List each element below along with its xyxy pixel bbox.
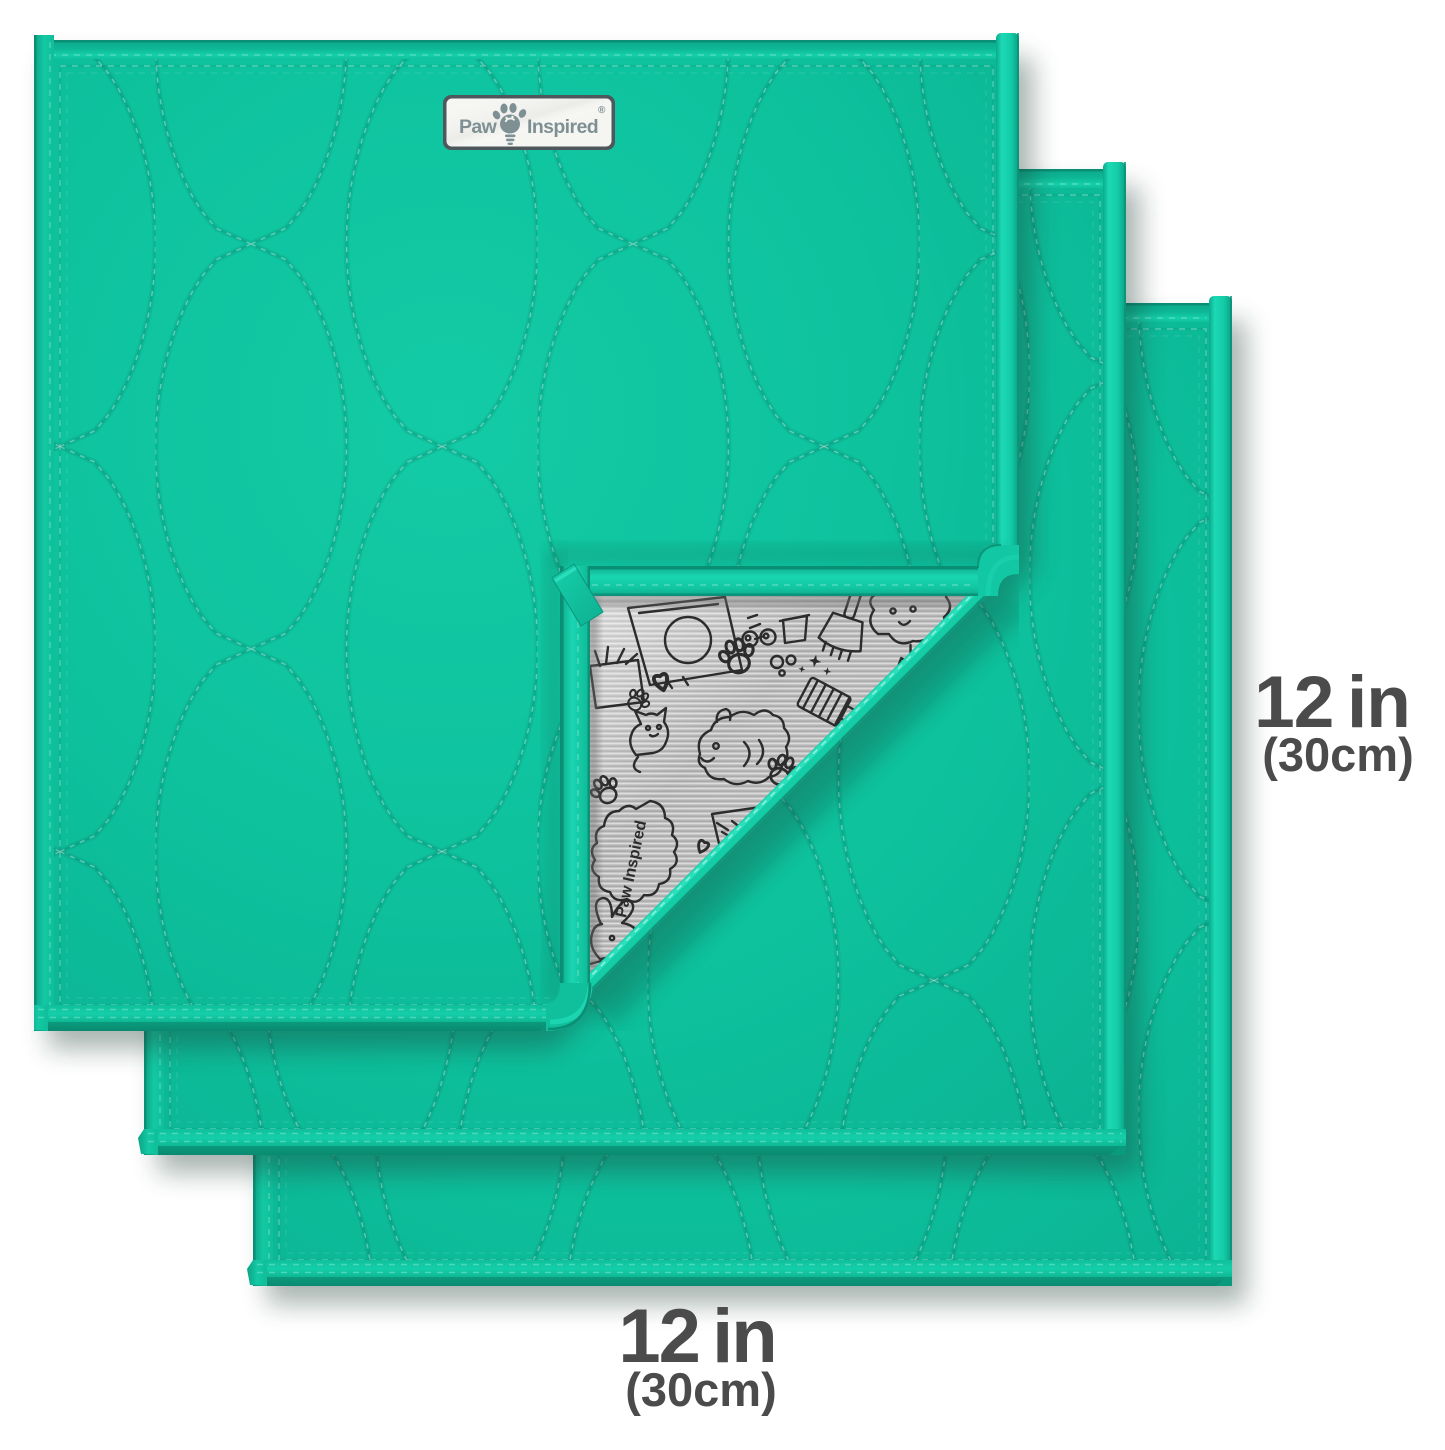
svg-text:(30cm): (30cm) xyxy=(625,1363,777,1416)
svg-text:®: ® xyxy=(598,105,606,116)
svg-text:(30cm): (30cm) xyxy=(1262,728,1414,781)
svg-text:Inspired: Inspired xyxy=(527,116,598,138)
svg-text:Paw: Paw xyxy=(459,116,498,138)
